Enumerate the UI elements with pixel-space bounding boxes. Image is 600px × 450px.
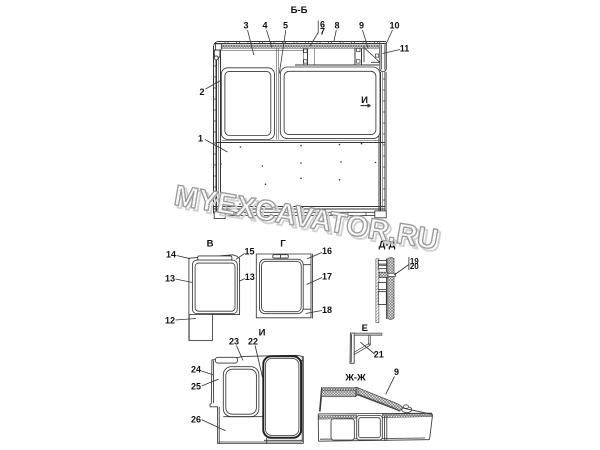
svg-text:8: 8 xyxy=(334,21,339,31)
svg-text:22: 22 xyxy=(248,337,258,347)
svg-text:4: 4 xyxy=(262,21,267,31)
svg-text:1: 1 xyxy=(198,134,203,144)
svg-text:10: 10 xyxy=(389,21,399,31)
svg-text:И: И xyxy=(259,327,266,338)
svg-text:16: 16 xyxy=(322,246,332,256)
svg-text:2: 2 xyxy=(199,87,204,97)
svg-text:Б-Б: Б-Б xyxy=(291,5,308,16)
svg-text:20: 20 xyxy=(410,262,419,271)
svg-text:24: 24 xyxy=(191,365,201,375)
svg-text:5: 5 xyxy=(283,21,288,31)
svg-text:13: 13 xyxy=(245,272,255,282)
svg-text:18: 18 xyxy=(322,305,332,315)
svg-text:25: 25 xyxy=(191,382,201,392)
svg-text:Г: Г xyxy=(280,239,286,250)
svg-text:11: 11 xyxy=(400,44,410,54)
svg-text:14: 14 xyxy=(166,250,176,260)
svg-text:23: 23 xyxy=(229,337,239,347)
svg-text:17: 17 xyxy=(322,272,332,282)
svg-text:3: 3 xyxy=(243,21,248,31)
svg-text:И: И xyxy=(361,95,368,106)
svg-text:26: 26 xyxy=(191,415,201,425)
svg-text:Ж-Ж: Ж-Ж xyxy=(344,373,366,384)
svg-text:9: 9 xyxy=(359,21,364,31)
svg-text:9: 9 xyxy=(394,367,399,377)
svg-text:В: В xyxy=(207,239,214,250)
svg-text:12: 12 xyxy=(165,316,175,326)
svg-text:15: 15 xyxy=(244,247,254,257)
svg-text:Е: Е xyxy=(362,323,368,334)
svg-text:7: 7 xyxy=(320,27,325,37)
svg-text:21: 21 xyxy=(374,350,384,360)
svg-text:13: 13 xyxy=(165,274,175,284)
